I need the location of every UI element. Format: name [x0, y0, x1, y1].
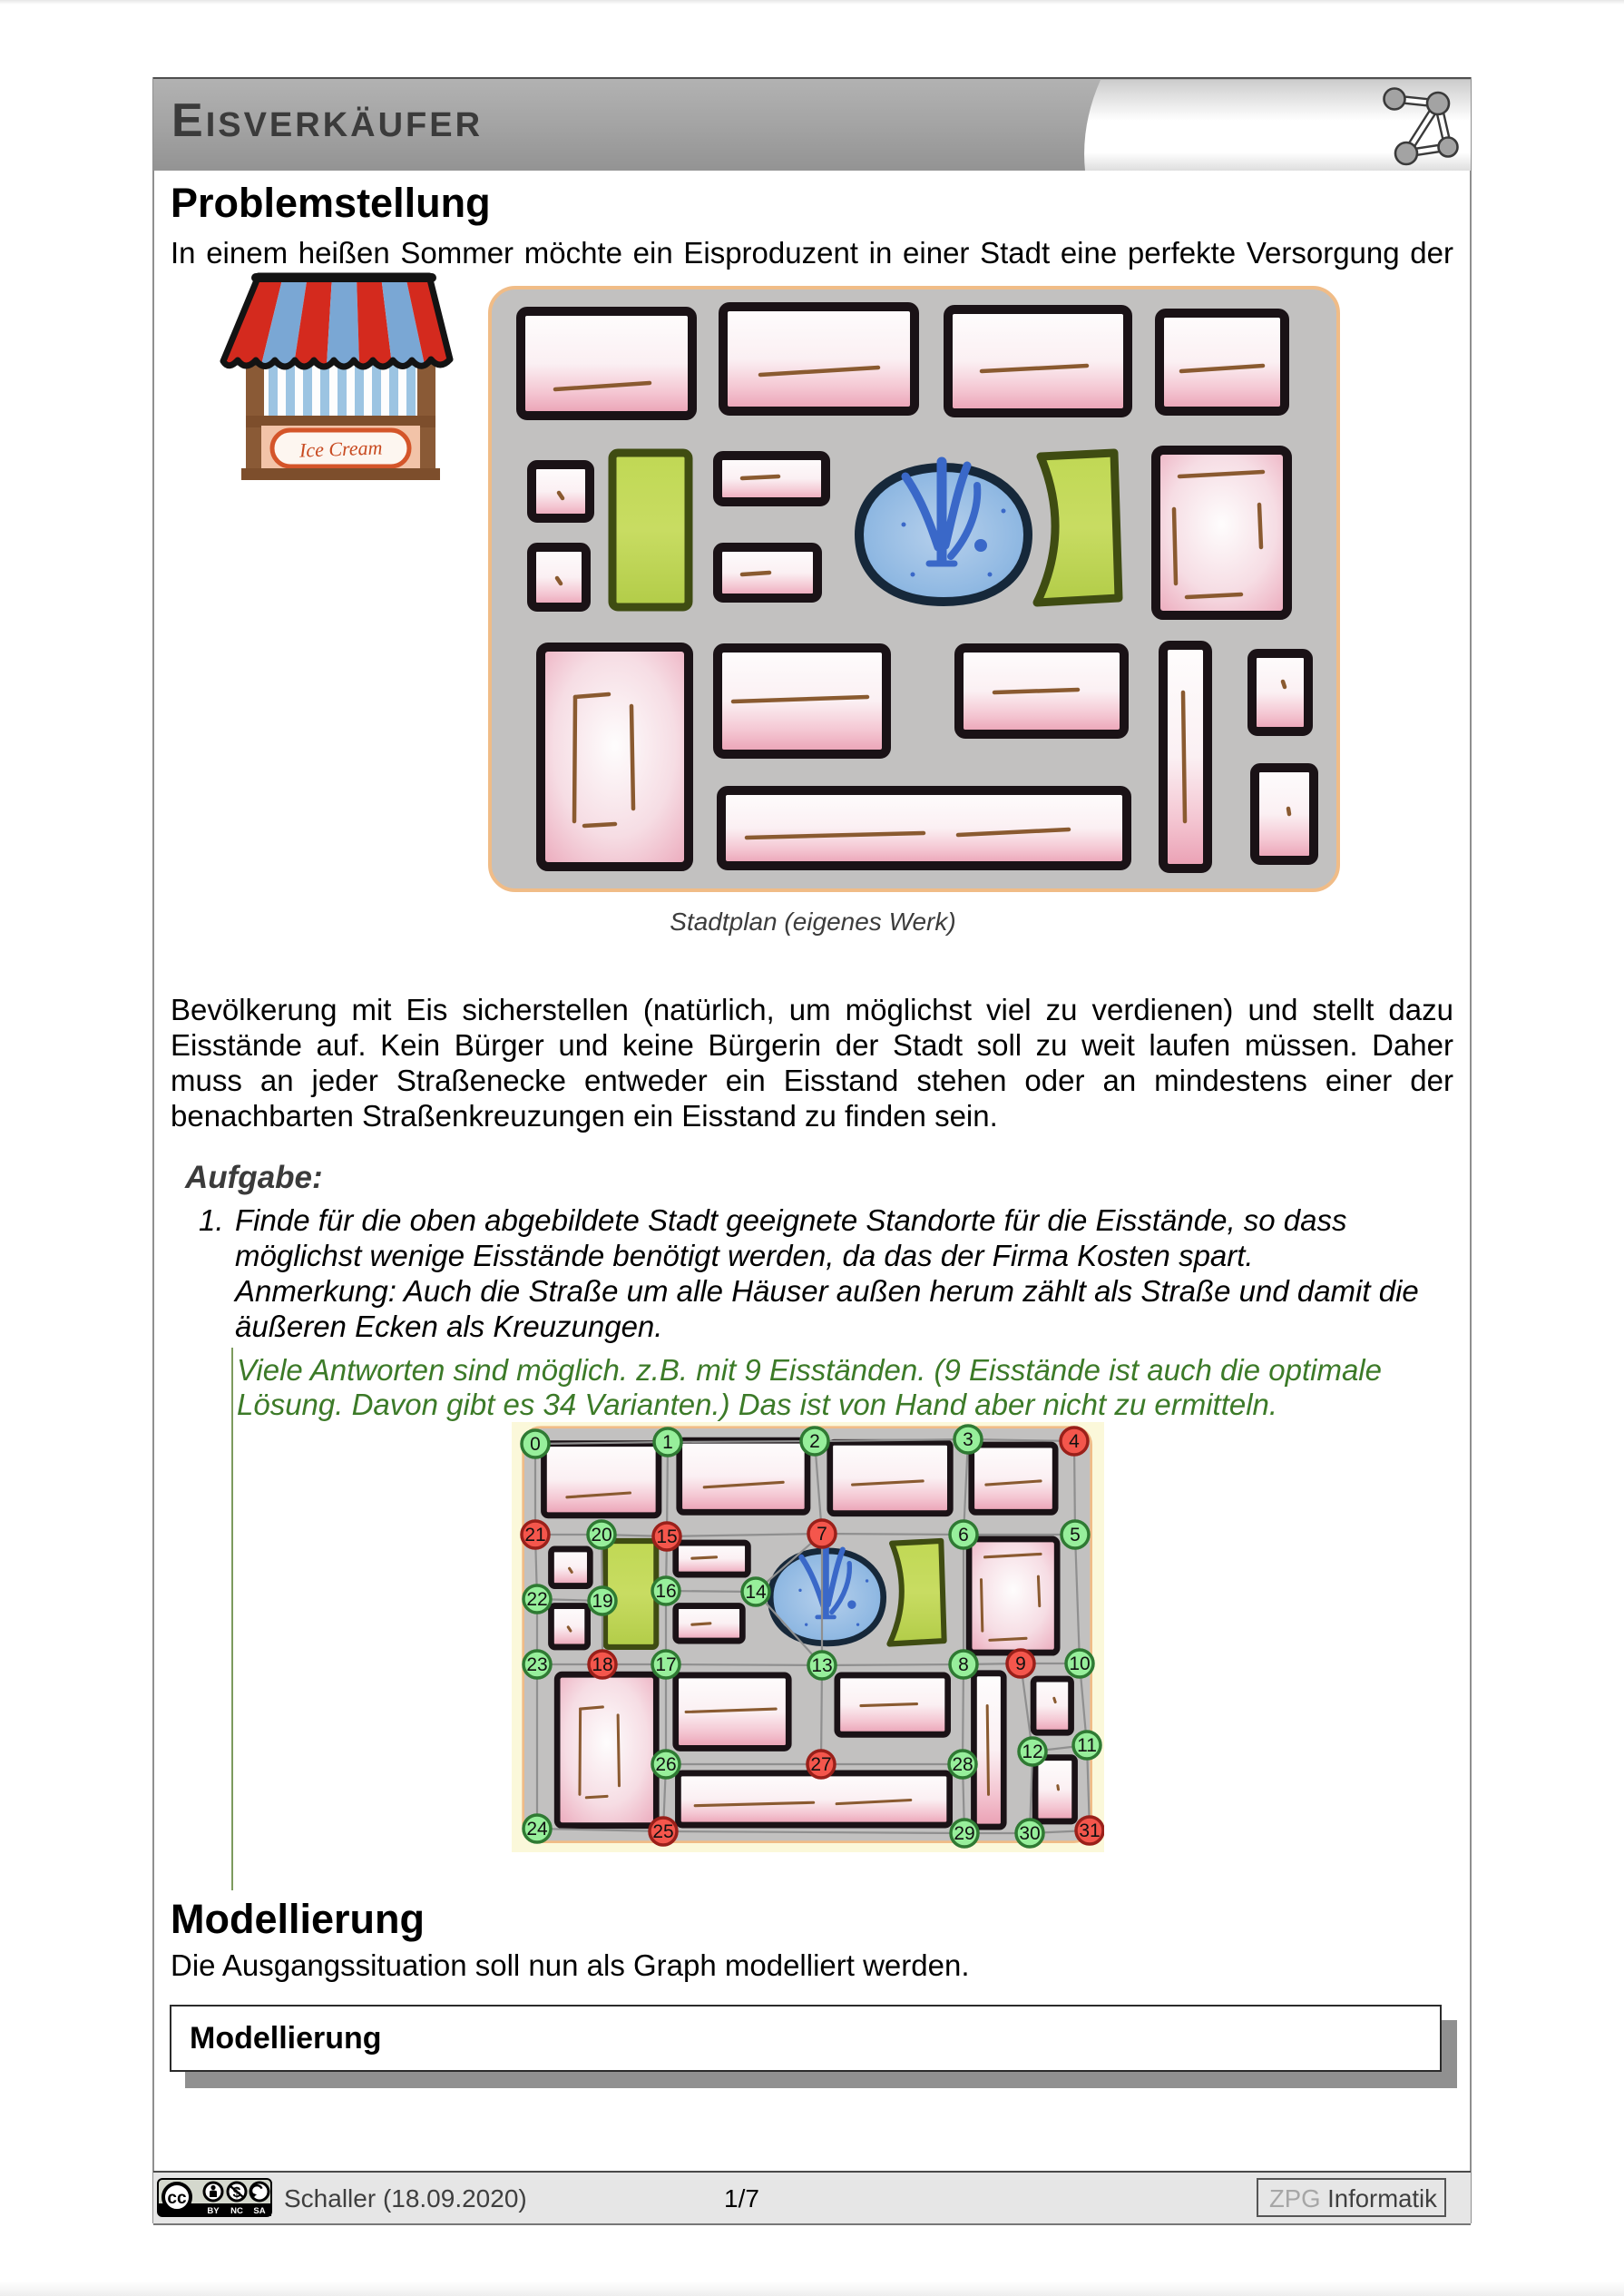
svg-text:16: 16 — [655, 1581, 676, 1602]
svg-text:BY: BY — [207, 2206, 220, 2216]
svg-text:26: 26 — [655, 1754, 676, 1775]
svg-text:28: 28 — [952, 1754, 973, 1775]
svg-text:24: 24 — [526, 1819, 548, 1840]
svg-text:17: 17 — [655, 1654, 676, 1675]
svg-text:14: 14 — [745, 1582, 767, 1603]
svg-text:20: 20 — [591, 1525, 611, 1545]
svg-text:1: 1 — [662, 1432, 673, 1453]
svg-text:21: 21 — [524, 1525, 545, 1545]
svg-text:13: 13 — [811, 1655, 832, 1676]
svg-text:30: 30 — [1019, 1823, 1040, 1844]
svg-text:5: 5 — [1070, 1525, 1081, 1545]
svg-text:31: 31 — [1079, 1820, 1100, 1841]
svg-text:2: 2 — [809, 1431, 820, 1452]
svg-text:11: 11 — [1077, 1735, 1097, 1756]
svg-text:NC: NC — [230, 2206, 243, 2216]
svg-text:3: 3 — [963, 1429, 973, 1450]
svg-text:27: 27 — [810, 1754, 831, 1775]
svg-text:22: 22 — [526, 1589, 547, 1610]
svg-text:7: 7 — [817, 1524, 827, 1545]
svg-text:10: 10 — [1069, 1653, 1090, 1674]
svg-text:8: 8 — [958, 1654, 969, 1675]
svg-text:25: 25 — [652, 1821, 673, 1842]
svg-text:Ice Cream: Ice Cream — [298, 436, 383, 461]
svg-text:29: 29 — [954, 1823, 974, 1844]
svg-text:9: 9 — [1015, 1653, 1026, 1674]
svg-text:18: 18 — [592, 1654, 612, 1675]
svg-text:0: 0 — [530, 1434, 541, 1455]
svg-text:23: 23 — [526, 1654, 547, 1675]
svg-text:19: 19 — [592, 1591, 612, 1612]
svg-text:cc: cc — [167, 2189, 187, 2208]
svg-text:12: 12 — [1022, 1742, 1042, 1762]
svg-text:SA: SA — [253, 2206, 265, 2216]
svg-text:15: 15 — [656, 1526, 677, 1547]
svg-text:6: 6 — [958, 1525, 969, 1545]
svg-text:4: 4 — [1069, 1431, 1080, 1452]
